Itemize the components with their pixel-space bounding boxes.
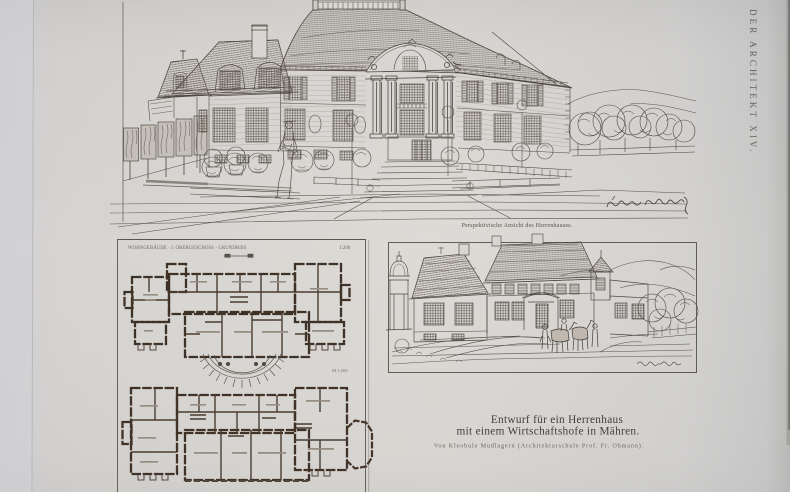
svg-text:Perspektivische Ansicht des He: Perspektivische Ansicht des Herrenhauses…	[462, 223, 573, 229]
svg-text:Entwurf für ein Herrenhaus: Entwurf für ein Herrenhaus	[491, 414, 623, 426]
svg-text:WOHNGEBÄUDE · I. OBERGESCHOSS: WOHNGEBÄUDE · I. OBERGESCHOSS · GRUNDRIS…	[128, 245, 247, 251]
svg-text:Von Kleobule Mudlagern (Archit: Von Kleobule Mudlagern (Architekturschul…	[434, 443, 644, 450]
svg-text:DER ARCHITEKT XIV.: DER ARCHITEKT XIV.	[748, 9, 758, 155]
svg-text:mit einem Wirtschaftshofe in M: mit einem Wirtschaftshofe in Mähren.	[457, 426, 640, 438]
svg-text:1:200: 1:200	[339, 246, 351, 251]
svg-text:M 1:200: M 1:200	[332, 368, 348, 373]
